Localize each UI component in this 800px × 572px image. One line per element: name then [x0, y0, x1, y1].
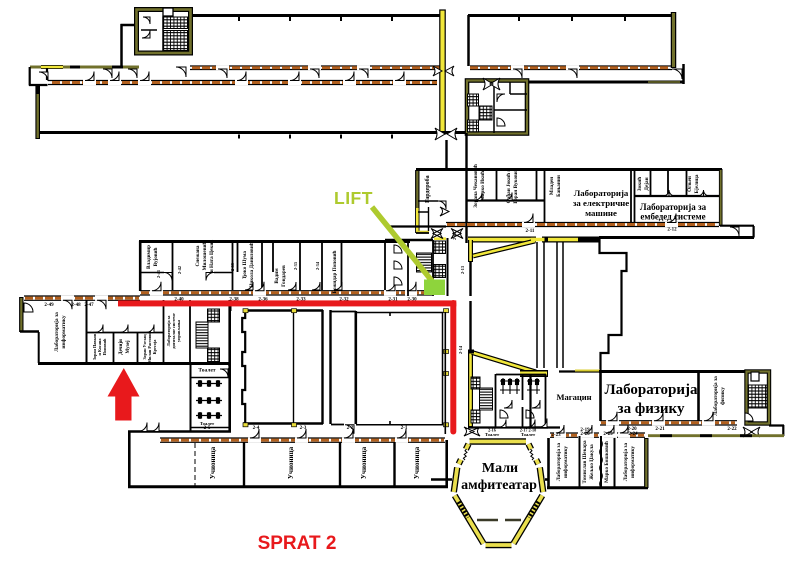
svg-text:Томислав Шекара: Томислав Шекара: [582, 440, 588, 484]
svg-text:Дејан: Дејан: [643, 177, 650, 190]
svg-text:Учионица: Учионица: [287, 446, 295, 479]
svg-text:Гондарев: Гондарев: [281, 265, 287, 287]
svg-text:2-12: 2-12: [667, 228, 677, 233]
svg-text:2-2: 2-2: [347, 426, 354, 431]
svg-text:Марко Бошковић: Марко Бошковић: [603, 441, 610, 483]
svg-text:SPRAT 2: SPRAT 2: [258, 533, 337, 554]
svg-text:Жељко Џакула: Жељко Џакула: [589, 444, 595, 480]
svg-text:Бјелица: Бјелица: [693, 174, 700, 193]
svg-text:2-3: 2-3: [300, 426, 307, 431]
svg-text:Лабораторија за: Лабораторија за: [640, 202, 707, 212]
svg-text:Учионица: Учионица: [209, 446, 217, 479]
svg-text:2-13: 2-13: [460, 265, 465, 274]
svg-text:2-34: 2-34: [315, 261, 320, 270]
svg-text:амфитеатар: амфитеатар: [461, 478, 537, 493]
svg-text:Ђоко Шума: Ђоко Шума: [242, 251, 248, 279]
svg-text:Учионица: Учионица: [360, 446, 368, 479]
svg-text:2-25: 2-25: [603, 432, 613, 437]
svg-text:Мали: Мали: [482, 461, 518, 476]
svg-text:Горан Вуковић: Горан Вуковић: [512, 168, 519, 203]
svg-text:2-26: 2-26: [580, 432, 590, 437]
svg-text:2-4: 2-4: [253, 426, 260, 431]
svg-text:за електричне: за електричне: [573, 198, 629, 208]
svg-text:информатику: информатику: [60, 315, 67, 349]
svg-text:Божидар Поповић: Божидар Поповић: [331, 250, 338, 293]
svg-text:Тоалет: Тоалет: [198, 368, 215, 374]
svg-text:Лабораторија за: Лабораторија за: [622, 443, 629, 482]
svg-text:Поповић: Поповић: [102, 338, 107, 355]
svg-text:Вадим: Вадим: [274, 268, 280, 284]
svg-text:Лабораторија: Лабораторија: [574, 188, 629, 198]
svg-text:2-41: 2-41: [156, 270, 161, 278]
svg-text:Тоалет: Тоалет: [485, 432, 500, 437]
svg-text:управљања: управљања: [176, 319, 181, 342]
svg-text:Зокић: Зокић: [636, 177, 643, 191]
svg-text:2-48: 2-48: [71, 303, 81, 308]
svg-text:Лабораторија за: Лабораторија за: [712, 376, 719, 416]
svg-text:Владимир: Владимир: [146, 245, 152, 269]
svg-text:Бањанин: Бањанин: [556, 175, 562, 197]
svg-text:Лабораторија за: Лабораторија за: [555, 443, 562, 482]
svg-text:Милошевић: Милошевић: [201, 242, 208, 271]
svg-text:физику: физику: [719, 387, 726, 405]
svg-text:Огњен: Огњен: [687, 176, 693, 192]
svg-text:Кресоја: Кресоја: [152, 339, 157, 355]
svg-text:2-21: 2-21: [655, 427, 665, 432]
svg-text:машине: машине: [585, 208, 617, 218]
svg-text:2-22: 2-22: [727, 427, 737, 432]
svg-text:и Ната Цекић: и Ната Цекић: [208, 240, 215, 273]
svg-text:Лабораторија: Лабораторија: [604, 382, 698, 398]
svg-text:Гардероба: Гардероба: [424, 175, 431, 203]
svg-text:Марко Икић: Марко Икић: [479, 171, 486, 201]
svg-text:Вујовић: Вујовић: [152, 247, 159, 266]
svg-text:LIFT: LIFT: [334, 188, 373, 208]
svg-text:Дечији: Дечији: [119, 339, 124, 355]
svg-text:2-49: 2-49: [44, 303, 54, 308]
svg-text:2-6: 2-6: [227, 363, 232, 370]
svg-text:2-35: 2-35: [293, 261, 298, 270]
svg-text:Младен: Младен: [549, 177, 555, 195]
svg-text:Магацин: Магацин: [556, 392, 591, 402]
svg-text:2-1: 2-1: [401, 426, 408, 431]
svg-text:Тоалет: Тоалет: [521, 432, 536, 437]
svg-text:2-10: 2-10: [452, 232, 457, 240]
svg-text:2-5: 2-5: [204, 426, 211, 431]
svg-text:информатику: информатику: [562, 446, 569, 478]
svg-text:2-42: 2-42: [177, 266, 182, 274]
svg-text:информатику: информатику: [629, 446, 636, 478]
svg-text:Зорана Чекановић: Зорана Чекановић: [472, 164, 479, 208]
svg-text:Срђан Јокић и: Срђан Јокић и: [505, 169, 512, 204]
svg-text:Учионица: Учионица: [413, 446, 421, 479]
svg-text:2-47: 2-47: [84, 303, 94, 308]
svg-text:Никола Даниловић: Никола Даниловић: [248, 242, 255, 288]
svg-text:2-11: 2-11: [526, 229, 535, 234]
svg-text:2-14: 2-14: [458, 345, 463, 354]
svg-text:2-23: 2-23: [551, 433, 561, 438]
svg-text:Музеј: Музеј: [126, 340, 131, 353]
svg-text:2-24: 2-24: [628, 432, 638, 437]
svg-text:Снежана: Снежана: [195, 245, 201, 266]
svg-text:2-39: 2-39: [230, 262, 235, 271]
svg-text:Лабораторија за: Лабораторија за: [53, 312, 60, 352]
svg-text:за физику: за физику: [618, 401, 685, 417]
svg-text:ембедед системе: ембедед системе: [640, 212, 705, 222]
